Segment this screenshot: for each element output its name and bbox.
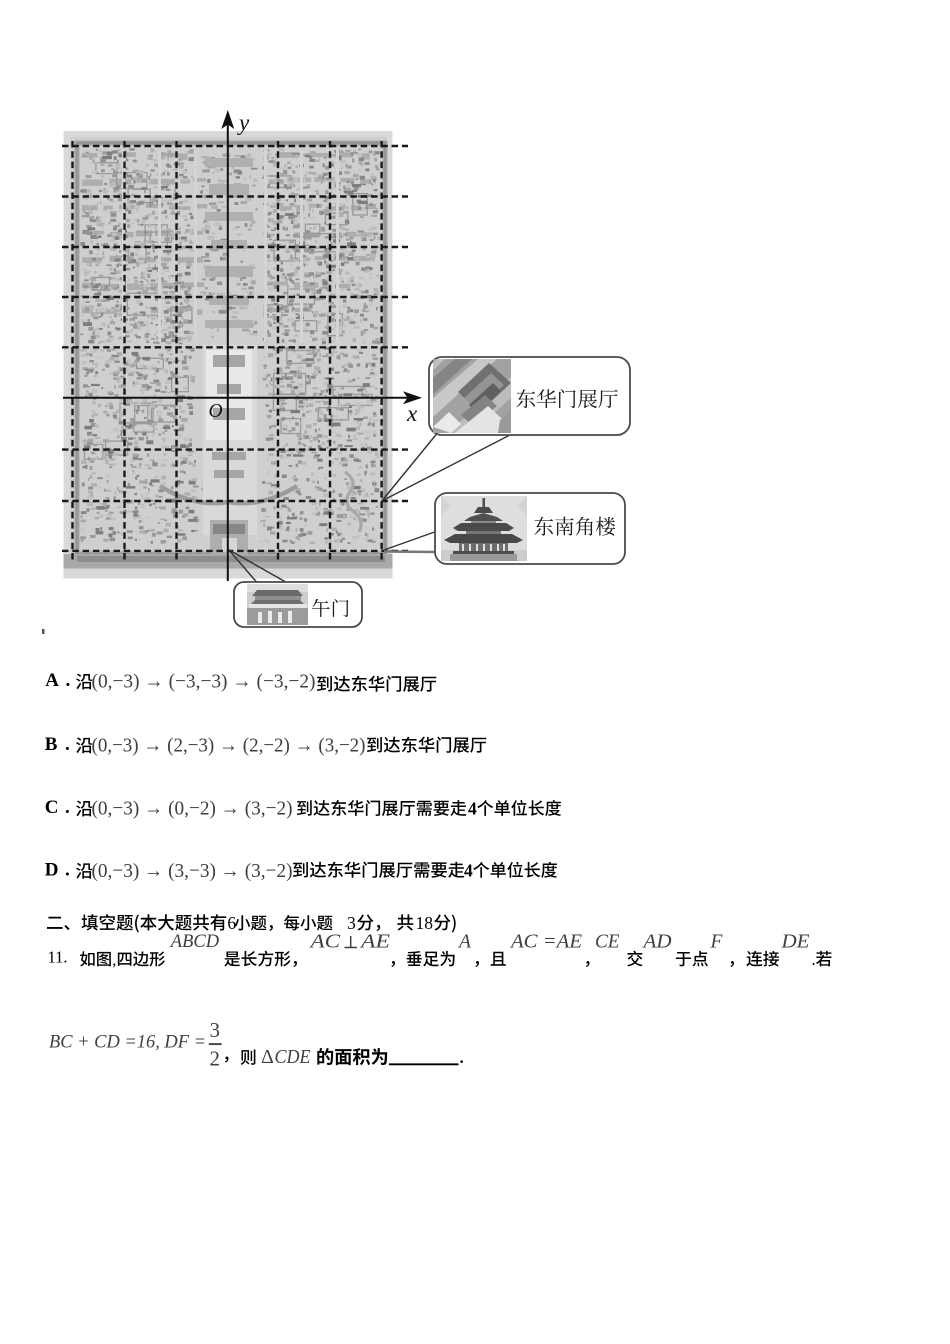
svg-text:18: 18 <box>416 913 434 933</box>
svg-text:D.: D. <box>45 859 70 880</box>
svg-text:C.: C. <box>45 797 70 818</box>
svg-text:3: 3 <box>347 913 356 933</box>
svg-text:O: O <box>209 401 223 422</box>
svg-text:AD: AD <box>641 932 671 953</box>
svg-text:(0,−3) → (2,−3) → (2,−2) → (3,: (0,−3) → (2,−3) → (2,−2) → (3,−2) <box>92 734 366 756</box>
svg-text:DE: DE <box>780 932 809 953</box>
svg-text:4: 4 <box>464 860 473 880</box>
svg-text:B.: B. <box>45 734 70 755</box>
svg-text:.: . <box>812 950 816 969</box>
svg-text:Δ: Δ <box>261 1046 274 1068</box>
svg-text:AE: AE <box>359 932 391 953</box>
svg-text:F: F <box>710 932 724 953</box>
svg-text:BC + CD =16, DF =: BC + CD =16, DF = <box>49 1032 206 1053</box>
svg-text:2: 2 <box>210 1047 221 1071</box>
svg-text:A: A <box>457 932 471 953</box>
svg-text:AC =AE: AC =AE <box>509 932 582 953</box>
svg-text:4: 4 <box>468 799 477 819</box>
svg-text:A.: A. <box>45 670 70 691</box>
svg-text:CDE: CDE <box>275 1047 311 1068</box>
svg-text:,: , <box>112 950 116 969</box>
svg-text:3: 3 <box>210 1018 221 1042</box>
svg-text:CE: CE <box>595 932 620 953</box>
svg-text:11.: 11. <box>48 948 68 967</box>
svg-text:x: x <box>406 401 418 426</box>
svg-text:.: . <box>460 1048 464 1067</box>
svg-text:y: y <box>237 110 250 135</box>
svg-text:AC: AC <box>308 932 341 953</box>
svg-text:ABCD: ABCD <box>169 932 220 952</box>
svg-text:(0,−3) → (−3,−3) → (−3,−2): (0,−3) → (−3,−3) → (−3,−2) <box>92 671 316 693</box>
svg-text:(0,−3) → (0,−2) → (3,−2): (0,−3) → (0,−2) → (3,−2) <box>92 798 293 820</box>
svg-text:6: 6 <box>227 913 236 933</box>
svg-text:(0,−3) → (3,−3) → (3,−2): (0,−3) → (3,−3) → (3,−2) <box>92 860 293 882</box>
